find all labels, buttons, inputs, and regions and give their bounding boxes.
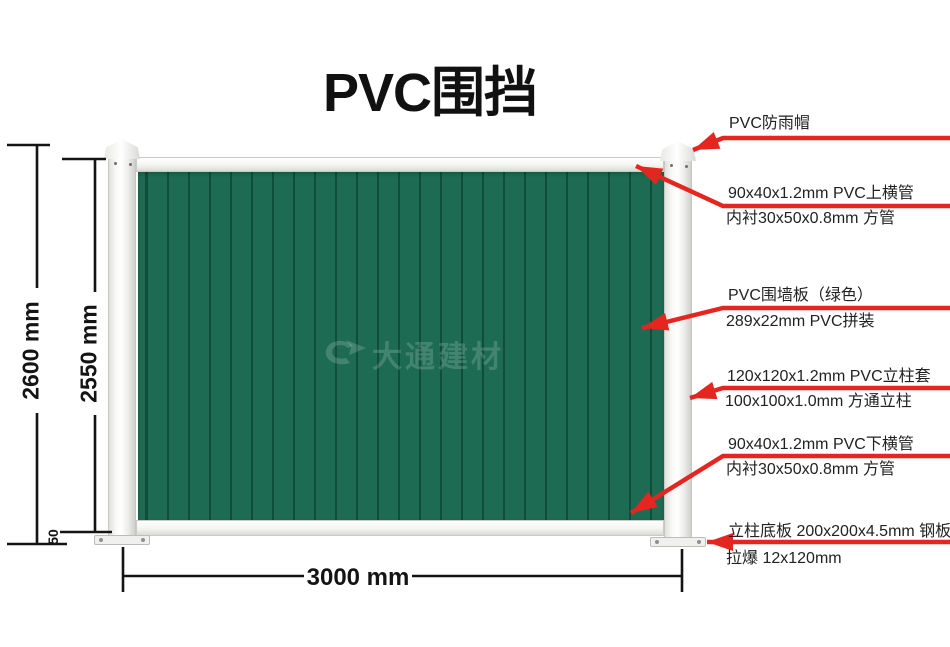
- leader-rain-cap: [693, 138, 950, 150]
- datong-logo-swoosh-icon: [320, 337, 366, 371]
- callout-bottom-rail-line1: 90x40x1.2mm PVC下横管: [728, 435, 914, 455]
- callout-wall-panel-line2: 289x22mm PVC拼装: [726, 312, 875, 332]
- watermark-text: 大通建材: [372, 332, 504, 376]
- screw-dot: [685, 165, 688, 168]
- top-rail: [136, 157, 664, 172]
- left-rain-cap: [104, 139, 140, 159]
- left-post: [108, 157, 136, 545]
- dim-50-label: 50: [45, 517, 61, 557]
- screw-dot: [670, 164, 673, 167]
- anchor-bolt: [697, 540, 701, 544]
- watermark: 大通建材: [320, 332, 504, 376]
- anchor-bolt: [99, 538, 103, 542]
- anchor-bolt: [141, 538, 145, 542]
- callout-bottom-rail-line2: 内衬30x50x0.8mm 方管: [726, 460, 895, 480]
- dim-2600-label: 2600 mm: [18, 286, 45, 416]
- dim-2550-label: 2550 mm: [76, 289, 103, 419]
- callout-base-plate-line2: 拉爆 12x120mm: [726, 549, 842, 569]
- callout-wall-panel-line1: PVC围墙板（绿色）: [728, 286, 873, 306]
- right-post: [664, 159, 692, 545]
- bottom-rail: [136, 520, 664, 536]
- callout-post-sleeve-line2: 100x100x1.0mm 方通立柱: [725, 392, 912, 412]
- callout-base-plate-line1: 立柱底板 200x200x4.5mm 钢板: [728, 522, 950, 542]
- callout-top-rail-line2: 内衬30x50x0.8mm 方管: [726, 209, 895, 229]
- dim-3000-label: 3000 mm: [304, 564, 412, 592]
- screw-dot: [129, 163, 132, 166]
- callout-rain-cap-label: PVC防雨帽: [729, 114, 810, 134]
- callout-top-rail-line1: 90x40x1.2mm PVC上横管: [728, 184, 914, 204]
- pvc-fence-diagram: PVC围挡 大通建材: [0, 0, 950, 647]
- screw-dot: [114, 162, 117, 165]
- anchor-bolt: [655, 540, 659, 544]
- right-rain-cap: [660, 141, 696, 161]
- callout-post-sleeve-line1: 120x120x1.2mm PVC立柱套: [727, 367, 931, 387]
- page-title: PVC围挡: [280, 48, 580, 127]
